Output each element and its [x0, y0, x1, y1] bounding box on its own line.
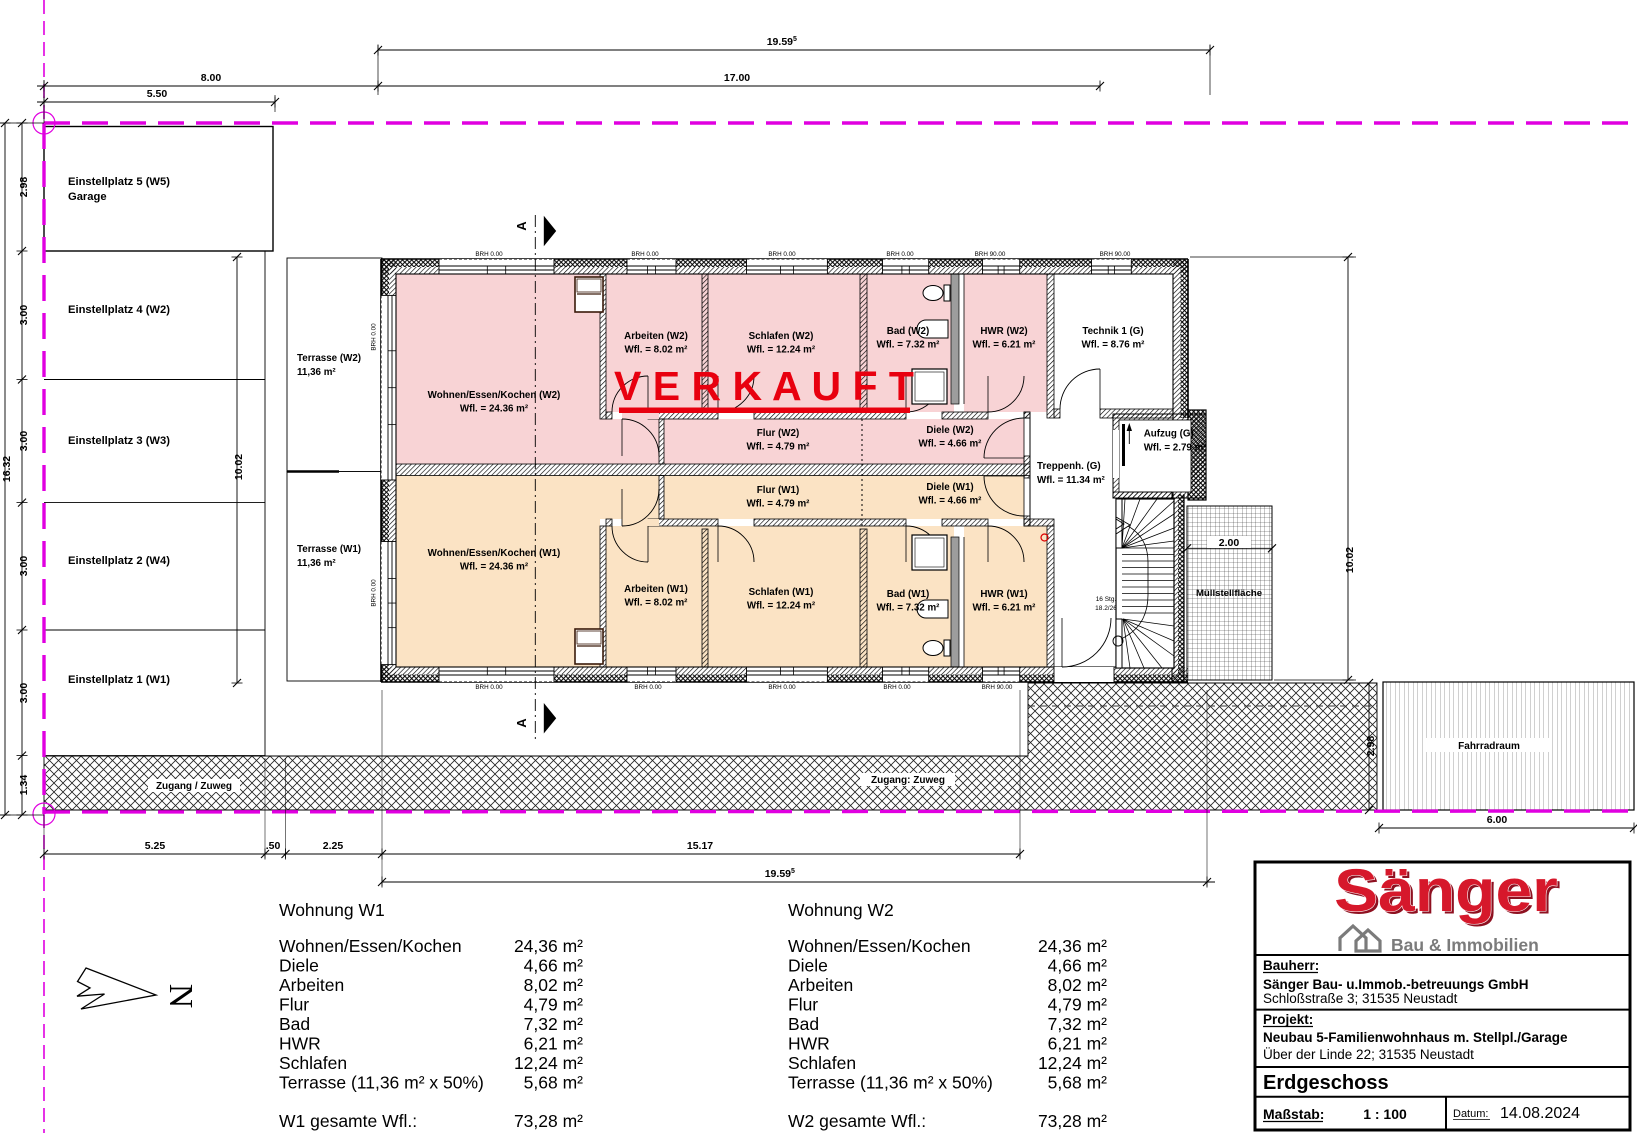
svg-text:BRH 0.00: BRH 0.00 — [768, 251, 796, 258]
svg-text:Arbeiten (W1): Arbeiten (W1) — [624, 584, 688, 595]
svg-text:1 : 100: 1 : 100 — [1363, 1106, 1407, 1122]
svg-text:Wohnung W1: Wohnung W1 — [279, 900, 385, 920]
svg-text:Schlafen: Schlafen — [788, 1053, 856, 1073]
svg-text:Wohnen/Essen/Kochen (W1): Wohnen/Essen/Kochen (W1) — [428, 548, 561, 559]
svg-text:Projekt:: Projekt: — [1263, 1012, 1313, 1027]
svg-text:19.59: 19.59 — [767, 36, 793, 48]
svg-text:A: A — [514, 221, 529, 231]
svg-text:Schlafen (W2): Schlafen (W2) — [749, 331, 814, 342]
svg-text:7,32 m²: 7,32 m² — [1048, 1014, 1107, 1034]
svg-text:73,28 m²: 73,28 m² — [1038, 1111, 1107, 1131]
svg-text:10.02: 10.02 — [1344, 547, 1356, 573]
svg-text:BRH 0.00: BRH 0.00 — [631, 251, 659, 258]
svg-text:Wohnen/Essen/Kochen: Wohnen/Essen/Kochen — [279, 936, 462, 956]
svg-text:2.98: 2.98 — [1365, 736, 1377, 757]
svg-text:3.00: 3.00 — [18, 305, 30, 326]
svg-text:Erdgeschoss: Erdgeschoss — [1263, 1072, 1389, 1094]
svg-text:BRH 0.00: BRH 0.00 — [883, 684, 911, 691]
svg-text:Wfl. = 11.34 m²: Wfl. = 11.34 m² — [1037, 475, 1106, 486]
svg-text:Einstellplatz 5 (W5): Einstellplatz 5 (W5) — [68, 176, 170, 188]
svg-text:Technik 1 (G): Technik 1 (G) — [1082, 326, 1143, 337]
svg-text:HWR (W1): HWR (W1) — [980, 589, 1027, 600]
svg-text:.50: .50 — [266, 840, 281, 852]
svg-text:BRH 0.00: BRH 0.00 — [371, 323, 378, 351]
svg-text:BRH 0.00: BRH 0.00 — [371, 579, 378, 607]
svg-text:11,36 m²: 11,36 m² — [297, 558, 336, 569]
svg-text:Einstellplatz 2 (W4): Einstellplatz 2 (W4) — [68, 555, 170, 567]
svg-text:Diele: Diele — [279, 956, 319, 976]
svg-text:HWR (W2): HWR (W2) — [980, 326, 1027, 337]
svg-text:Wfl. = 7.32 m²: Wfl. = 7.32 m² — [877, 603, 941, 614]
svg-text:16.32: 16.32 — [1, 456, 13, 482]
svg-text:24,36 m²: 24,36 m² — [514, 936, 583, 956]
svg-text:Arbeiten: Arbeiten — [279, 975, 344, 995]
svg-text:Schloßstraße 3; 31535 Neustadt: Schloßstraße 3; 31535 Neustadt — [1263, 991, 1458, 1006]
svg-text:4,79 m²: 4,79 m² — [1048, 995, 1107, 1015]
svg-text:6,21 m²: 6,21 m² — [524, 1034, 583, 1054]
svg-text:24,36 m²: 24,36 m² — [1038, 936, 1107, 956]
svg-text:Arbeiten (W2): Arbeiten (W2) — [624, 331, 688, 342]
svg-text:Flur (W2): Flur (W2) — [757, 428, 799, 439]
svg-text:BRH 0.00: BRH 0.00 — [634, 684, 662, 691]
svg-text:BRH 0.00: BRH 0.00 — [768, 684, 796, 691]
svg-text:19.59: 19.59 — [765, 868, 791, 880]
svg-text:Bad (W1): Bad (W1) — [887, 589, 929, 600]
svg-text:8,02 m²: 8,02 m² — [1048, 975, 1107, 995]
svg-text:Wfl. = 24.36 m²: Wfl. = 24.36 m² — [460, 404, 529, 415]
svg-text:Schlafen: Schlafen — [279, 1053, 347, 1073]
svg-text:BRH 90.00: BRH 90.00 — [975, 251, 1006, 258]
svg-text:Neubau 5-Familienwohnhaus m. S: Neubau 5-Familienwohnhaus m. Stellpl./Ga… — [1263, 1030, 1568, 1045]
svg-text:Wfl. = 7.32 m²: Wfl. = 7.32 m² — [877, 340, 941, 351]
svg-text:5,68 m²: 5,68 m² — [1048, 1073, 1107, 1093]
svg-text:15.17: 15.17 — [687, 840, 713, 852]
svg-text:Wfl. = 24.36 m²: Wfl. = 24.36 m² — [460, 562, 529, 573]
svg-text:2.98: 2.98 — [18, 177, 30, 198]
svg-text:Wfl. = 4.66 m²: Wfl. = 4.66 m² — [919, 439, 983, 450]
svg-text:14.08.2024: 14.08.2024 — [1500, 1105, 1580, 1122]
svg-text:W2 gesamte Wfl.:: W2 gesamte Wfl.: — [788, 1111, 926, 1131]
svg-text:HWR: HWR — [279, 1034, 321, 1054]
svg-text:73,28 m²: 73,28 m² — [514, 1111, 583, 1131]
svg-text:Wfl. = 6.21 m²: Wfl. = 6.21 m² — [973, 603, 1037, 614]
svg-text:2.25: 2.25 — [323, 840, 344, 852]
svg-text:5.25: 5.25 — [145, 840, 166, 852]
svg-text:3.00: 3.00 — [18, 683, 30, 704]
svg-text:12,24 m²: 12,24 m² — [1038, 1053, 1107, 1073]
svg-text:Sänger Bau- u.Immob.-betreuung: Sänger Bau- u.Immob.-betreuungs GmbH — [1263, 977, 1529, 992]
svg-text:Wfl. = 12.24 m²: Wfl. = 12.24 m² — [747, 345, 816, 356]
svg-text:4,66 m²: 4,66 m² — [1048, 956, 1107, 976]
svg-text:HWR: HWR — [788, 1034, 830, 1054]
svg-text:12,24 m²: 12,24 m² — [514, 1053, 583, 1073]
svg-text:BRH 0.00: BRH 0.00 — [475, 684, 503, 691]
svg-text:Wfl. = 2.79 m²: Wfl. = 2.79 m² — [1144, 443, 1208, 454]
svg-text:Terrasse (11,36 m² x 50%): Terrasse (11,36 m² x 50%) — [788, 1073, 993, 1093]
svg-text:Einstellplatz 1 (W1): Einstellplatz 1 (W1) — [68, 674, 170, 686]
svg-text:Wfl. = 8.02 m²: Wfl. = 8.02 m² — [625, 345, 689, 356]
svg-text:Wfl. = 4.79 m²: Wfl. = 4.79 m² — [747, 499, 811, 510]
svg-text:Bad: Bad — [279, 1014, 310, 1034]
svg-text:6.00: 6.00 — [1487, 814, 1508, 826]
svg-text:2.00: 2.00 — [1219, 537, 1240, 549]
svg-text:5,68 m²: 5,68 m² — [524, 1073, 583, 1093]
svg-text:Bad (W2): Bad (W2) — [887, 326, 929, 337]
svg-text:3.00: 3.00 — [18, 431, 30, 452]
svg-text:Diele: Diele — [788, 956, 828, 976]
svg-text:16 Stg.: 16 Stg. — [1096, 596, 1117, 603]
svg-text:BRH 90.00: BRH 90.00 — [982, 684, 1013, 691]
svg-text:Flur: Flur — [788, 995, 818, 1015]
svg-text:1.34: 1.34 — [18, 775, 30, 796]
svg-text:Flur: Flur — [279, 995, 309, 1015]
svg-text:A: A — [514, 718, 529, 728]
svg-text:Flur (W1): Flur (W1) — [757, 485, 799, 496]
svg-text:Sänger: Sänger — [1334, 858, 1558, 925]
svg-text:7,32 m²: 7,32 m² — [524, 1014, 583, 1034]
svg-text:Terrasse (11,36 m² x 50%): Terrasse (11,36 m² x 50%) — [279, 1073, 484, 1093]
svg-text:5: 5 — [793, 36, 797, 43]
svg-text:Treppenh. (G): Treppenh. (G) — [1037, 461, 1101, 472]
svg-text:Fahrradraum: Fahrradraum — [1458, 741, 1520, 752]
svg-text:3.00: 3.00 — [18, 556, 30, 577]
svg-text:Terrasse (W2): Terrasse (W2) — [297, 353, 361, 364]
svg-text:V E R K A U F T: V E R K A U F T — [614, 363, 914, 409]
svg-text:BRH 0.00: BRH 0.00 — [886, 251, 914, 258]
svg-text:Wfl. = 12.24 m²: Wfl. = 12.24 m² — [747, 601, 816, 612]
svg-text:BRH 0.00: BRH 0.00 — [475, 251, 503, 258]
svg-text:Wohnen/Essen/Kochen: Wohnen/Essen/Kochen — [788, 936, 971, 956]
svg-text:18.2/26: 18.2/26 — [1095, 605, 1117, 612]
svg-text:Datum:: Datum: — [1453, 1108, 1488, 1120]
svg-text:Diele (W1): Diele (W1) — [926, 482, 973, 493]
svg-text:8.00: 8.00 — [201, 72, 222, 84]
svg-text:5: 5 — [791, 868, 795, 875]
svg-text:Über der Linde 22; 31535 Neust: Über der Linde 22; 31535 Neustadt — [1263, 1047, 1474, 1062]
svg-text:Zugang: Zuweg: Zugang: Zuweg — [871, 775, 945, 786]
svg-text:Aufzug (G): Aufzug (G) — [1144, 429, 1194, 440]
svg-text:10.02: 10.02 — [233, 454, 245, 480]
svg-text:Wohnung W2: Wohnung W2 — [788, 900, 894, 920]
svg-text:W1 gesamte Wfl.:: W1 gesamte Wfl.: — [279, 1111, 417, 1131]
svg-text:BRH 90.00: BRH 90.00 — [1100, 251, 1131, 258]
svg-text:Bad: Bad — [788, 1014, 819, 1034]
svg-text:17.00: 17.00 — [724, 72, 750, 84]
svg-text:Müllstellfläche: Müllstellfläche — [1196, 588, 1262, 599]
svg-text:Garage: Garage — [68, 191, 107, 203]
svg-text:4,79 m²: 4,79 m² — [524, 995, 583, 1015]
svg-text:Wfl. = 8.02 m²: Wfl. = 8.02 m² — [625, 598, 689, 609]
svg-text:Wfl. = 4.79 m²: Wfl. = 4.79 m² — [747, 442, 811, 453]
svg-text:6,21 m²: 6,21 m² — [1048, 1034, 1107, 1054]
svg-text:5.50: 5.50 — [147, 88, 168, 100]
svg-text:Zugang / Zuweg: Zugang / Zuweg — [156, 781, 232, 792]
svg-text:Bauherr:: Bauherr: — [1263, 958, 1319, 973]
svg-text:11,36 m²: 11,36 m² — [297, 367, 336, 378]
svg-text:Terrasse (W1): Terrasse (W1) — [297, 544, 361, 555]
svg-text:Wfl. = 8.76 m²: Wfl. = 8.76 m² — [1082, 340, 1146, 351]
svg-text:Maßstab:: Maßstab: — [1263, 1106, 1324, 1122]
svg-text:Einstellplatz 4 (W2): Einstellplatz 4 (W2) — [68, 304, 170, 316]
svg-text:Arbeiten: Arbeiten — [788, 975, 853, 995]
svg-text:Einstellplatz 3 (W3): Einstellplatz 3 (W3) — [68, 435, 170, 447]
svg-text:Wfl. = 4.66 m²: Wfl. = 4.66 m² — [919, 496, 983, 507]
svg-text:Wfl. = 6.21 m²: Wfl. = 6.21 m² — [973, 340, 1037, 351]
svg-text:Diele (W2): Diele (W2) — [926, 425, 973, 436]
svg-text:N: N — [162, 984, 199, 1009]
svg-text:Schlafen (W1): Schlafen (W1) — [749, 587, 814, 598]
svg-text:8,02 m²: 8,02 m² — [524, 975, 583, 995]
svg-text:Bau & Immobilien: Bau & Immobilien — [1391, 935, 1539, 955]
svg-text:4,66 m²: 4,66 m² — [524, 956, 583, 976]
svg-text:Wohnen/Essen/Kochen (W2): Wohnen/Essen/Kochen (W2) — [428, 390, 561, 401]
